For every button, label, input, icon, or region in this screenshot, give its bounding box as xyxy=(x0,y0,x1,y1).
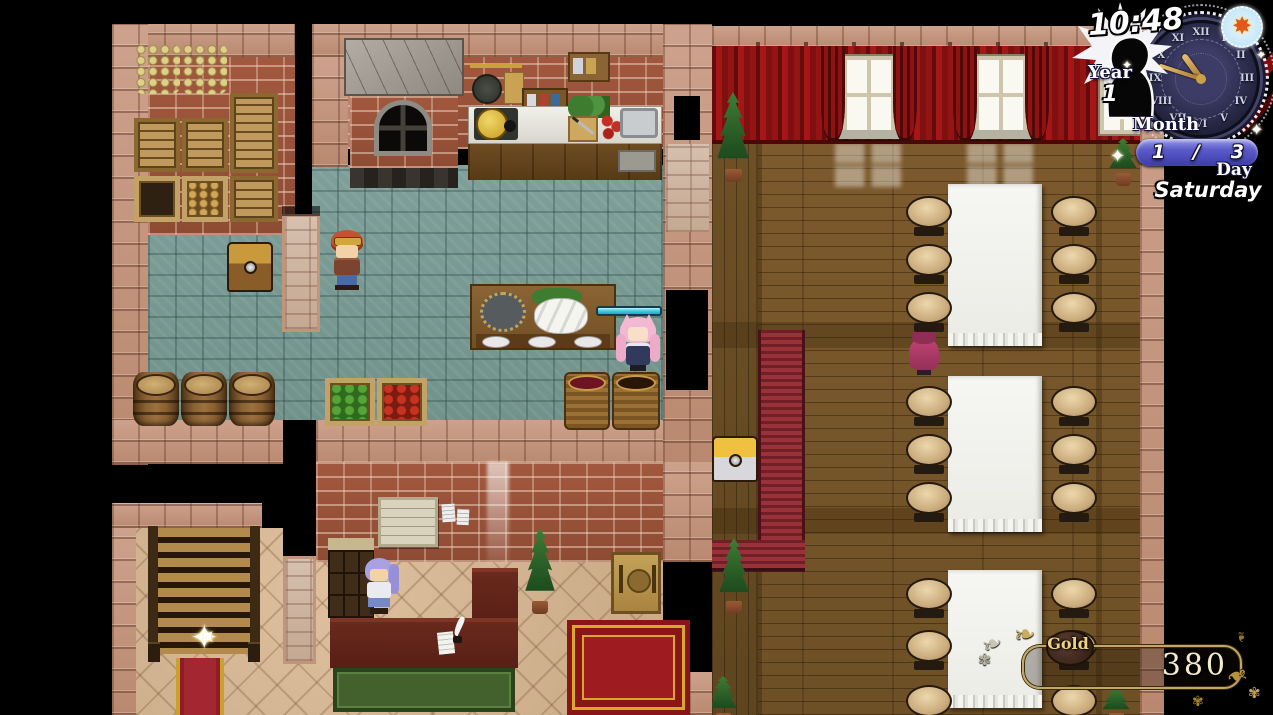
menu-sign[interactable] xyxy=(611,552,661,614)
fork-icon xyxy=(619,565,623,593)
leaf-flourish-icon: ❧ xyxy=(1231,629,1251,645)
stool xyxy=(906,386,952,428)
clock-numeral: III xyxy=(1236,73,1258,85)
flower-icon: ✾ xyxy=(978,650,991,669)
patron-feet xyxy=(917,370,931,375)
window xyxy=(843,56,895,134)
stair-post xyxy=(248,642,260,662)
month-current: 1 xyxy=(1152,141,1165,163)
gold-value: 380 xyxy=(1100,648,1228,683)
year-value: 1 xyxy=(1086,82,1134,107)
month-label: Month xyxy=(1126,114,1206,135)
clock-numeral: IV xyxy=(1230,96,1252,108)
stool xyxy=(1051,578,1097,620)
stool xyxy=(1051,292,1097,334)
dining-table xyxy=(948,376,1042,532)
stool xyxy=(1051,386,1097,428)
dining-floor-plank-strip[interactable] xyxy=(712,136,758,715)
window xyxy=(975,56,1027,134)
sun-icon: ✸ xyxy=(1221,6,1263,48)
character-receptionist[interactable] xyxy=(363,558,399,616)
red-carpet[interactable] xyxy=(567,620,690,715)
potted-tree xyxy=(718,538,750,614)
window-light-reflection xyxy=(967,143,1033,187)
counter-mat xyxy=(333,668,515,712)
carpet-runner[interactable] xyxy=(758,330,805,568)
stair-post xyxy=(148,642,160,662)
plate-icon xyxy=(627,569,651,593)
stool xyxy=(906,578,952,620)
sparkle-icon: ✦ xyxy=(1256,48,1266,62)
key-cabinet-top xyxy=(328,538,374,550)
gold-label: Gold xyxy=(1038,634,1098,653)
window-light-reflection xyxy=(835,143,901,187)
day-value: Saturday xyxy=(1148,178,1268,202)
hud-gold: ❧ ✾ ❧ Gold 380 ❧ ✾ ✾ ❧ xyxy=(980,618,1273,715)
stool xyxy=(1051,482,1097,524)
potted-tree xyxy=(524,528,556,614)
stairroom-left-wall xyxy=(112,528,136,715)
lobby[interactable]: ✦ ✦ xyxy=(0,0,715,715)
receptionist-face xyxy=(370,569,388,581)
curtain-tieback xyxy=(1025,46,1049,141)
treasure-chest-silver[interactable] xyxy=(712,436,758,482)
receptionist-skirt xyxy=(368,598,390,607)
stool xyxy=(906,244,952,286)
day-label: Day xyxy=(1206,160,1262,180)
window-sill xyxy=(837,130,901,139)
stairroom-wall-top xyxy=(112,503,262,528)
curtain-tieback xyxy=(821,46,845,141)
sun-glyph: ✸ xyxy=(1232,12,1252,40)
stool xyxy=(906,292,952,334)
stool xyxy=(906,685,952,715)
knife-icon xyxy=(652,565,656,593)
reception-counter[interactable] xyxy=(330,618,518,668)
stool xyxy=(1051,434,1097,476)
stair-runner-carpet[interactable] xyxy=(176,658,224,715)
clock-numeral: V xyxy=(1213,113,1235,125)
potted-tree xyxy=(716,92,750,182)
dining-table xyxy=(948,184,1042,346)
chest-lock-icon xyxy=(729,454,742,467)
divider-lower xyxy=(663,462,712,562)
stool xyxy=(906,482,952,524)
stool xyxy=(1051,244,1097,286)
window-sill xyxy=(969,130,1033,139)
month-separator: / xyxy=(1193,141,1200,163)
clock-center-cap xyxy=(1196,74,1206,84)
wall-stub xyxy=(283,556,316,664)
stool xyxy=(906,434,952,476)
curtain-tieback xyxy=(953,46,977,141)
curtain-tieback xyxy=(893,46,917,141)
stool xyxy=(906,196,952,238)
light-beam xyxy=(487,462,509,564)
receptionist-body xyxy=(367,582,391,598)
flower-icon: ✾ xyxy=(1192,694,1204,710)
corridor-dark xyxy=(283,420,316,564)
receptionist-shoes xyxy=(370,608,388,614)
character-patron-pink-robe[interactable] xyxy=(908,328,940,376)
hud-clock: XIIIIIIIIIVVVIVIIVIIIIXXXI ✸ ✦ ✦ ✦ 10:48… xyxy=(1060,0,1273,215)
notice-board xyxy=(378,497,438,547)
guest-ledger-paper xyxy=(437,631,455,655)
flower-icon: ✾ xyxy=(1248,684,1261,702)
paper-note xyxy=(457,509,470,526)
clock-numeral: II xyxy=(1230,50,1252,62)
paper-note xyxy=(441,504,455,523)
inkwell-icon xyxy=(453,636,462,643)
game-viewport: ✦ xyxy=(0,0,1273,715)
stool xyxy=(906,630,952,672)
year-label: Year xyxy=(1078,62,1142,83)
sparkle-icon: ✦ xyxy=(1250,120,1263,139)
